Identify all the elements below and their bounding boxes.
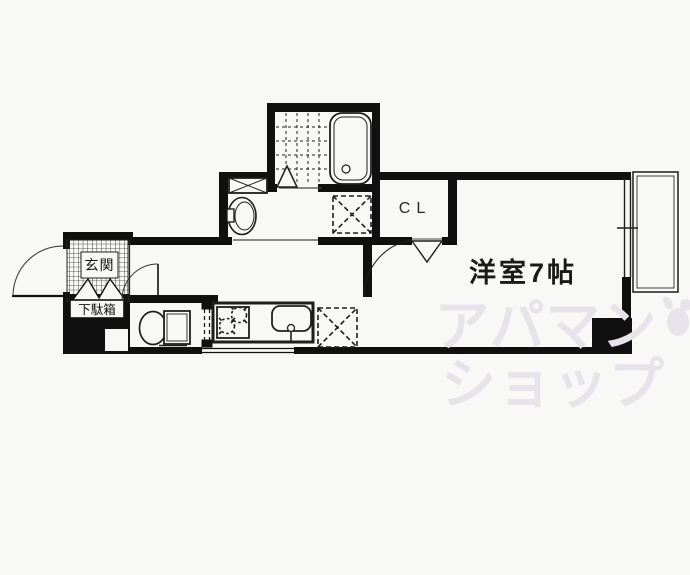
entrance-door-swing-arc (13, 246, 63, 296)
entrance-label: 玄関 (85, 257, 115, 273)
washing-machine-space (333, 196, 371, 233)
watermark-mascot-icon (661, 295, 690, 336)
wall-entrance-top (63, 232, 133, 240)
toilet (140, 311, 191, 346)
sink-faucet-icon (288, 325, 295, 332)
wall-bathroom-bottom (318, 184, 380, 192)
bathtub-drain-icon (342, 165, 350, 173)
wall-toilet-top (128, 295, 218, 303)
shower-room (276, 113, 329, 187)
kitchen-window-gap (202, 346, 294, 355)
wall-closet-right (448, 172, 457, 245)
washer-pan (229, 178, 267, 193)
washbasin (227, 198, 256, 235)
wall-corridor-top (128, 237, 232, 245)
watermark-line2: ショップ (441, 353, 665, 415)
bathtub (330, 113, 371, 184)
washbasin-faucet-icon (227, 209, 234, 222)
refrigerator-space (318, 308, 357, 347)
shoe-cabinet-niche (105, 329, 128, 351)
toilet-folding-door (202, 303, 212, 347)
room-door (364, 240, 442, 297)
balcony (633, 172, 678, 292)
wall-bathroom-left (267, 103, 275, 192)
closet-label: CL (399, 200, 431, 217)
watermark: アパマン ショップ (435, 295, 690, 415)
watermark-line1: アパマン (435, 295, 658, 357)
entrance: 玄関 (12, 240, 158, 302)
shoe-cabinet: 下駄箱 (70, 300, 124, 318)
shoe-cabinet-label: 下駄箱 (78, 302, 116, 317)
wall-bathroom-bottom-stub (267, 184, 277, 192)
sliding-window (617, 177, 638, 277)
wall-bathroom-top (267, 103, 380, 112)
floorplan-drawing: CL 玄関 下駄箱 (0, 0, 690, 575)
floorplan: CL 玄関 下駄箱 (0, 0, 690, 575)
toilet-bowl-icon (140, 312, 167, 345)
room-door-leaf-icon (412, 241, 442, 262)
main-room-label: 洋室7帖 (469, 257, 577, 288)
wall-room-top (372, 172, 631, 180)
